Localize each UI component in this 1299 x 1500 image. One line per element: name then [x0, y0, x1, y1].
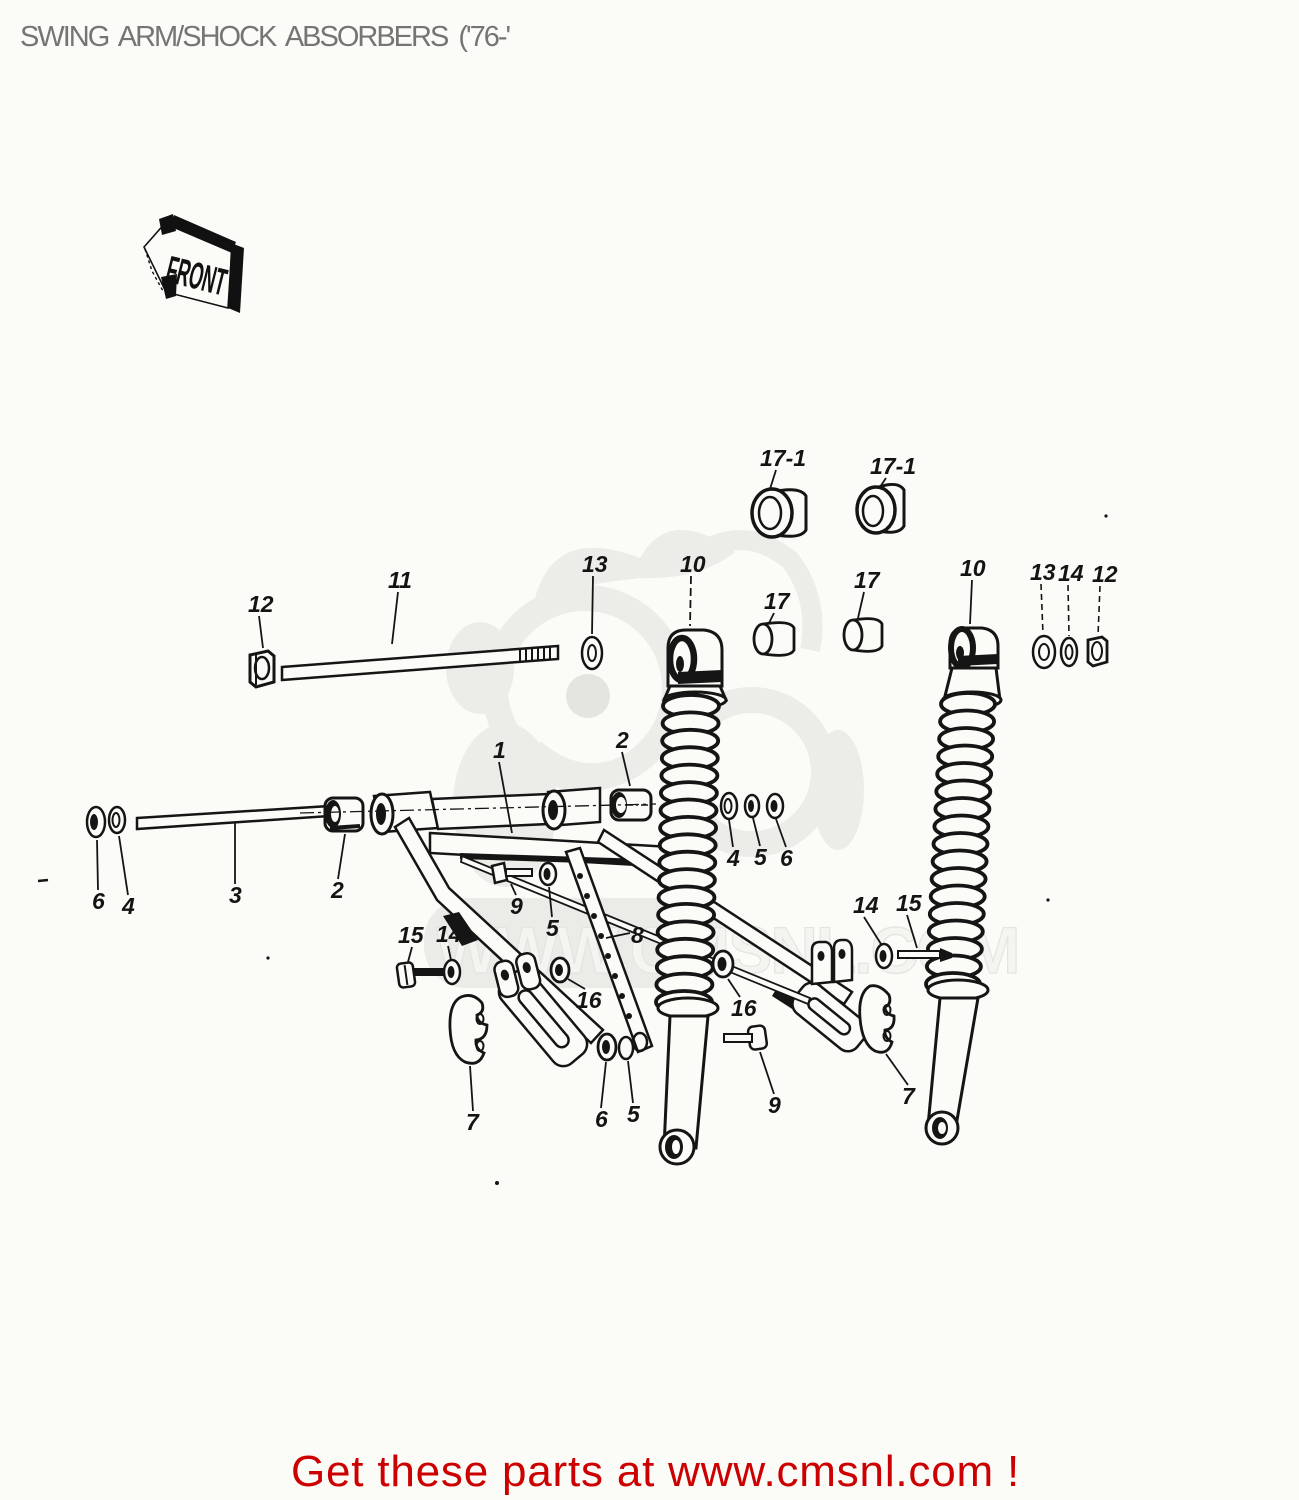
svg-text:16: 16 [576, 987, 602, 1013]
svg-text:17-1: 17-1 [870, 453, 916, 479]
svg-text:6: 6 [595, 1106, 608, 1132]
svg-text:5: 5 [627, 1101, 641, 1127]
svg-text:15: 15 [398, 922, 425, 948]
svg-text:9: 9 [510, 893, 523, 919]
svg-text:5: 5 [754, 844, 768, 870]
svg-text:7: 7 [466, 1109, 480, 1135]
svg-text:11: 11 [388, 567, 412, 593]
svg-text:4: 4 [726, 845, 740, 871]
svg-text:14: 14 [436, 921, 462, 947]
svg-text:7: 7 [902, 1083, 916, 1109]
svg-text:13: 13 [1030, 559, 1056, 585]
svg-text:17: 17 [764, 588, 791, 614]
svg-text:16: 16 [731, 995, 757, 1021]
svg-text:10: 10 [960, 555, 986, 581]
svg-text:3: 3 [229, 882, 242, 908]
svg-text:15: 15 [896, 890, 923, 916]
svg-text:13: 13 [582, 551, 608, 577]
svg-text:8: 8 [631, 922, 644, 948]
svg-text:4: 4 [121, 893, 135, 919]
svg-text:12: 12 [1092, 561, 1118, 587]
svg-text:14: 14 [853, 892, 879, 918]
svg-text:17-1: 17-1 [760, 445, 806, 471]
svg-text:SWING ARM/SHOCK ABSORBERS ('76: SWING ARM/SHOCK ABSORBERS ('76-' [20, 21, 510, 53]
svg-text:6: 6 [92, 888, 105, 914]
svg-text:12: 12 [248, 591, 274, 617]
svg-text:17: 17 [854, 567, 881, 593]
svg-text:2: 2 [615, 727, 629, 753]
svg-text:6: 6 [780, 845, 793, 871]
svg-text:2: 2 [330, 877, 344, 903]
svg-text:Get these parts at www.cmsnl.c: Get these parts at www.cmsnl.com ! [291, 1447, 1020, 1496]
svg-text:10: 10 [680, 551, 706, 577]
svg-text:5: 5 [546, 915, 560, 941]
svg-text:1: 1 [493, 737, 506, 763]
svg-text:14: 14 [1058, 560, 1084, 586]
svg-text:9: 9 [768, 1092, 781, 1118]
